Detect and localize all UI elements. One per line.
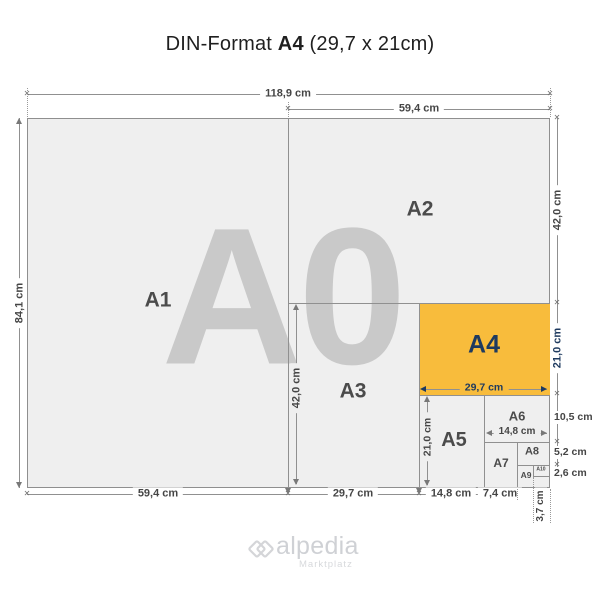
dim-a10-height: 2,6 cm xyxy=(552,467,589,480)
extension-line xyxy=(550,88,551,117)
page-title: DIN-Format A4 (29,7 x 21cm) xyxy=(0,33,600,56)
dim-a5-height: 21,0 cm xyxy=(422,413,435,462)
extension-line xyxy=(517,489,518,500)
tick-icon: ✕ xyxy=(554,299,561,307)
logo-wordmark: alpedia xyxy=(276,534,359,559)
extension-line xyxy=(27,88,28,117)
tick-icon: ✕ xyxy=(554,114,561,122)
dim-a3-width: 29,7 cm xyxy=(328,487,378,500)
dim-a4-height: 21,0 cm xyxy=(551,323,564,373)
label-a9: A9 xyxy=(521,471,532,480)
title-suffix: (29,7 x 21cm) xyxy=(310,33,435,55)
label-a5: A5 xyxy=(441,430,467,450)
a0-watermark: A0 xyxy=(161,200,402,395)
arrow-up-icon xyxy=(293,304,299,310)
logo-tagline: Marktplatz xyxy=(299,560,353,570)
din-format-diagram: DIN-Format A4 (29,7 x 21cm) ✕ ✕ 118,9 cm… xyxy=(0,0,600,600)
arrow-right-icon xyxy=(541,386,547,392)
dim-a5-width: 14,8 cm xyxy=(426,487,476,500)
tick-icon: ✕ xyxy=(554,438,561,446)
arrow-up-icon xyxy=(16,118,22,124)
dim-a2-height: 42,0 cm xyxy=(551,185,564,235)
label-a1: A1 xyxy=(145,290,172,311)
dim-total-width: 118,9 cm xyxy=(260,87,316,100)
label-a2: A2 xyxy=(407,199,434,220)
arrow-right-icon xyxy=(541,430,547,436)
title-format: A4 xyxy=(278,33,304,55)
arrow-down-icon xyxy=(424,480,430,486)
arrow-down-icon xyxy=(16,482,22,488)
dim-half-width-top: 59,4 cm xyxy=(394,102,444,115)
arrow-up-icon xyxy=(424,396,430,402)
label-a6: A6 xyxy=(509,410,526,423)
dim-a8-height: 5,2 cm xyxy=(552,446,589,459)
dim-a6-height: 10,5 cm xyxy=(552,411,595,424)
dim-a6-width: 14,8 cm xyxy=(494,426,541,438)
tick-icon: ✕ xyxy=(24,490,31,498)
label-a10: A10 xyxy=(536,468,545,473)
arrow-left-icon xyxy=(420,386,426,392)
dim-total-height: 84,1 cm xyxy=(13,278,26,328)
arrow-left-icon xyxy=(486,430,492,436)
dim-a10-width: 3,7 cm xyxy=(535,487,547,524)
dim-a4-width: 29,7 cm xyxy=(460,382,509,395)
label-a3: A3 xyxy=(340,381,367,402)
alpedia-logo-icon xyxy=(248,536,274,567)
arrow-down-icon xyxy=(293,479,299,485)
dim-a7-width: 7,4 cm xyxy=(478,487,522,500)
tick-icon: ✕ xyxy=(554,390,561,398)
label-a7: A7 xyxy=(493,457,508,469)
title-prefix: DIN-Format xyxy=(166,33,272,55)
extension-line xyxy=(533,477,534,523)
dim-a1-width: 59,4 cm xyxy=(133,487,183,500)
arrow-down-icon xyxy=(416,488,422,494)
extension-line xyxy=(288,102,289,117)
label-a4: A4 xyxy=(468,333,500,358)
extension-line xyxy=(550,489,551,523)
dim-a3-height: 42,0 cm xyxy=(290,363,303,413)
arrow-down-icon xyxy=(285,488,291,494)
label-a8: A8 xyxy=(525,447,539,458)
